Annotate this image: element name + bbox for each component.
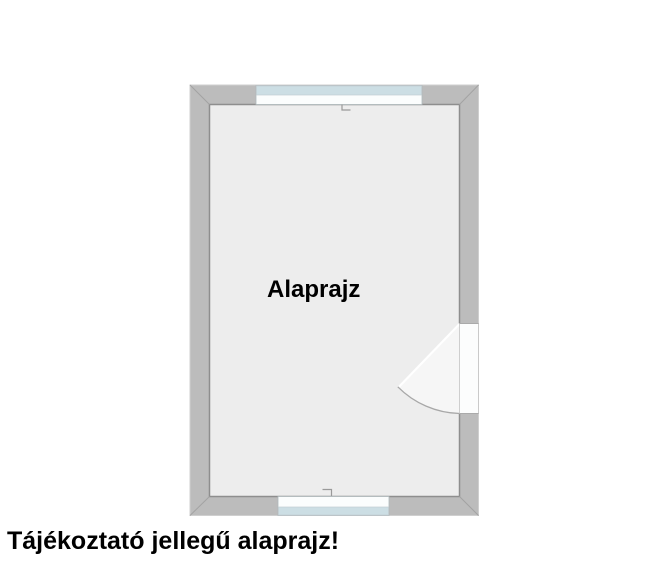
disclaimer-text: Tájékoztató jellegű alaprajz! bbox=[7, 527, 339, 555]
door-opening bbox=[460, 324, 479, 414]
room-label: Alaprajz bbox=[267, 276, 360, 304]
top-window-glass bbox=[257, 86, 422, 95]
bottom-window-glass bbox=[279, 507, 389, 515]
floor-plan-page: Alaprajz Tájékoztató jellegű alaprajz! bbox=[0, 0, 655, 587]
